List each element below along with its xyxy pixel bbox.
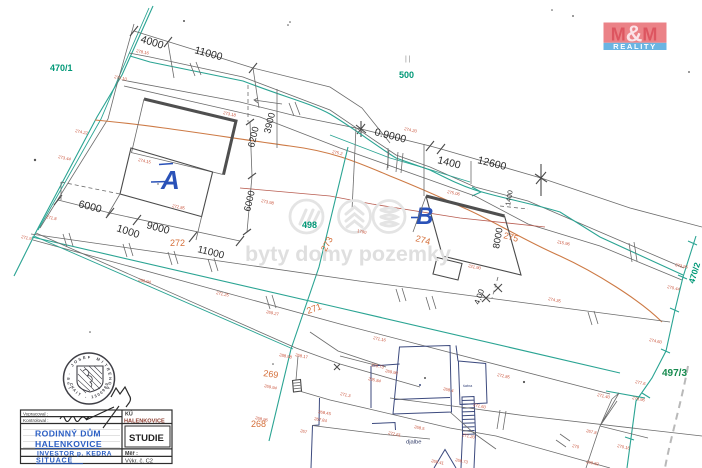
svg-text:| |: | | bbox=[405, 56, 411, 63]
svg-text:Kontroloval :: Kontroloval : bbox=[23, 418, 49, 423]
svg-text:byty domy pozemky: byty domy pozemky bbox=[245, 243, 451, 266]
svg-text:REALITY: REALITY bbox=[613, 42, 657, 51]
svg-text:HALENKOVICE: HALENKOVICE bbox=[124, 419, 165, 425]
svg-text:497/3: 497/3 bbox=[662, 368, 687, 379]
svg-text:STUDIE: STUDIE bbox=[129, 433, 164, 444]
svg-text:A: A bbox=[160, 165, 180, 195]
svg-text:RODINNÝ DŮM: RODINNÝ DŮM bbox=[35, 428, 101, 439]
svg-text:SITUACE: SITUACE bbox=[36, 456, 73, 465]
svg-text:500: 500 bbox=[399, 70, 414, 80]
svg-text:498: 498 bbox=[302, 220, 317, 230]
svg-text:269: 269 bbox=[263, 368, 279, 380]
svg-text:N: N bbox=[108, 377, 113, 380]
svg-text:Vypracoval :: Vypracoval : bbox=[23, 412, 48, 417]
svg-text:470/1: 470/1 bbox=[50, 63, 73, 73]
svg-text:272: 272 bbox=[170, 238, 185, 248]
svg-text:Měř :: Měř : bbox=[125, 451, 138, 457]
svg-text:HALENKOVICE: HALENKOVICE bbox=[35, 439, 102, 449]
svg-text:Výkr. č. C2: Výkr. č. C2 bbox=[125, 459, 153, 465]
svg-text:djalbe: djalbe bbox=[406, 440, 421, 446]
svg-text:šatna: šatna bbox=[463, 384, 473, 388]
svg-text:KÚ: KÚ bbox=[125, 411, 133, 418]
